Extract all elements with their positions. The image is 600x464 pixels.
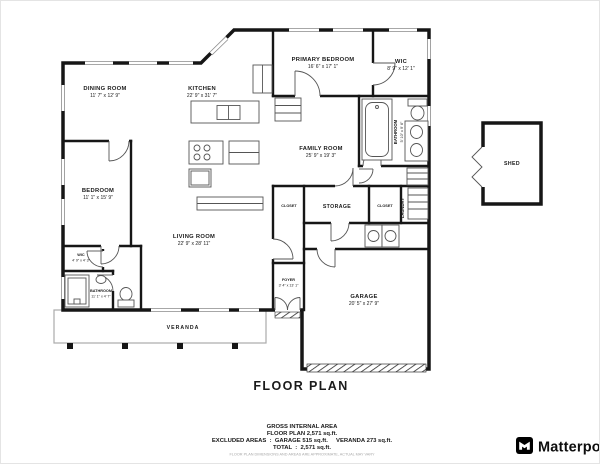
page-title: FLOOR PLAN [253,379,348,393]
svg-text:8' 9" x 12' 1": 8' 9" x 12' 1" [387,66,415,72]
svg-text:16' 6" x 17' 1": 16' 6" x 17' 1" [308,64,338,70]
svg-text:11' 1" x 4' 7": 11' 1" x 4' 7" [91,295,111,299]
floor-plan-page: DINING ROOM 11' 7" x 12' 9" KITCHEN 22' … [0,0,600,464]
svg-text:WIC: WIC [395,59,408,65]
dining-room-label: DINING ROOM 11' 7" x 12' 9" [83,86,126,99]
primary-bathroom-label: BATHROOM 5' 10" x 9' 6" [393,119,404,144]
veranda-post [122,343,128,349]
svg-text:KITCHEN: KITCHEN [188,86,216,92]
toilet [120,288,132,301]
svg-text:22' 9" x 31' 7": 22' 9" x 31' 7" [187,93,217,99]
svg-text:WIC: WIC [77,253,85,257]
bedroom-label: BEDROOM 11' 1" x 15' 9" [82,188,114,201]
primary-wic-label: WIC 8' 9" x 12' 1" [387,59,415,72]
sink [96,276,106,284]
summary-heading: GROSS INTERNAL AREA [267,424,338,430]
garage-label: GARAGE 20' 5" x 27' 9" [349,294,379,307]
exterior-walls [63,30,541,369]
svg-text:22' 9" x 28' 11": 22' 9" x 28' 11" [178,241,211,247]
toilet [408,99,427,106]
linen-closet [407,168,428,185]
svg-text:BATHROOM: BATHROOM [393,119,398,144]
matterport-wordmark: Matterport [538,440,600,456]
foyer-label: FOYER 3' 4" x 13' 1" [279,278,299,288]
veranda-label: VERANDA [167,325,200,331]
closet-left-label: CLOSET [281,204,297,208]
svg-text:3' 4" x 13' 1": 3' 4" x 13' 1" [279,284,299,288]
svg-text:FAMILY ROOM: FAMILY ROOM [299,146,343,152]
pantry-shelves [275,98,301,121]
stove-counter [189,141,223,164]
svg-text:DINING ROOM: DINING ROOM [83,86,126,92]
closet-right-label: CLOSET [377,204,393,208]
floor-plan-drawing: DINING ROOM 11' 7" x 12' 9" KITCHEN 22' … [1,1,600,464]
svg-text:5' 10" x 9' 6": 5' 10" x 9' 6" [400,121,404,142]
storage-label: STORAGE [323,204,351,210]
veranda-outline [54,310,266,349]
shed-label: SHED [504,161,520,167]
garage-door-hatch [307,364,426,373]
laundry-fixtures [365,225,399,247]
svg-text:25' 9" x 19' 3": 25' 9" x 19' 3" [306,153,336,159]
area-summary: GROSS INTERNAL AREA FLOOR PLAN 2,571 sq.… [212,424,393,457]
veranda-post [232,343,238,349]
laundry-label: LAUNDRY [400,198,405,219]
hall-closet-shelves [408,188,428,219]
svg-text:LIVING ROOM: LIVING ROOM [173,234,215,240]
kitchen-label: KITCHEN 22' 9" x 31' 7" [187,86,217,99]
veranda-post [67,343,73,349]
svg-text:FOYER: FOYER [282,278,295,282]
living-room-label: LIVING ROOM 22' 9" x 28' 11" [173,234,215,247]
family-room-label: FAMILY ROOM 25' 9" x 19' 3" [299,146,343,159]
summary-disclaimer: FLOOR PLAN DIMENSIONS AND AREAS ARE APPR… [229,453,375,457]
svg-text:PRIMARY BEDROOM: PRIMARY BEDROOM [292,57,355,63]
svg-text:20' 5" x 27' 9": 20' 5" x 27' 9" [349,301,379,307]
entry-porch-hatch [275,312,300,318]
summary-total: TOTAL : 2,571 sq.ft. [273,445,331,451]
diagonal-window [210,37,228,56]
svg-text:BATHROOM: BATHROOM [90,289,112,293]
small-bathroom-label: BATHROOM 11' 1" x 4' 7" [90,289,112,299]
veranda-post [177,343,183,349]
summary-excluded: EXCLUDED AREAS : GARAGE 515 sq.ft. VERAN… [212,438,393,444]
matterport-logo: Matterport [516,437,600,456]
svg-text:GARAGE: GARAGE [350,294,377,300]
svg-text:4' 9" x 4' 3": 4' 9" x 4' 3" [72,259,90,263]
primary-bedroom-label: PRIMARY BEDROOM 16' 6" x 17' 1" [292,57,355,70]
summary-floor-plan: FLOOR PLAN 2,571 sq.ft. [267,431,338,437]
svg-text:BEDROOM: BEDROOM [82,188,114,194]
small-wic-label: WIC 4' 9" x 4' 3" [72,253,90,263]
svg-text:11' 1" x 15' 9": 11' 1" x 15' 9" [83,195,113,201]
svg-text:11' 7" x 12' 9": 11' 7" x 12' 9" [90,93,120,99]
